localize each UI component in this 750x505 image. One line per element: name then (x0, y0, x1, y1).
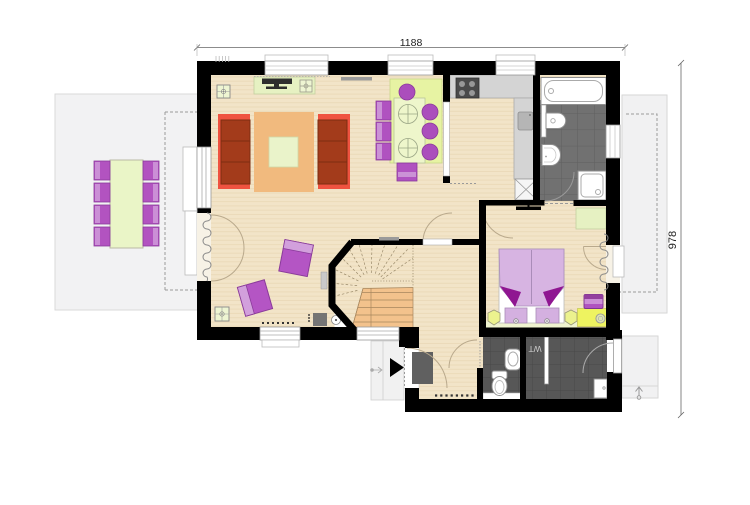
svg-text:1188: 1188 (400, 37, 423, 49)
svg-text:WT: WT (528, 344, 541, 354)
svg-text:978: 978 (667, 231, 679, 249)
